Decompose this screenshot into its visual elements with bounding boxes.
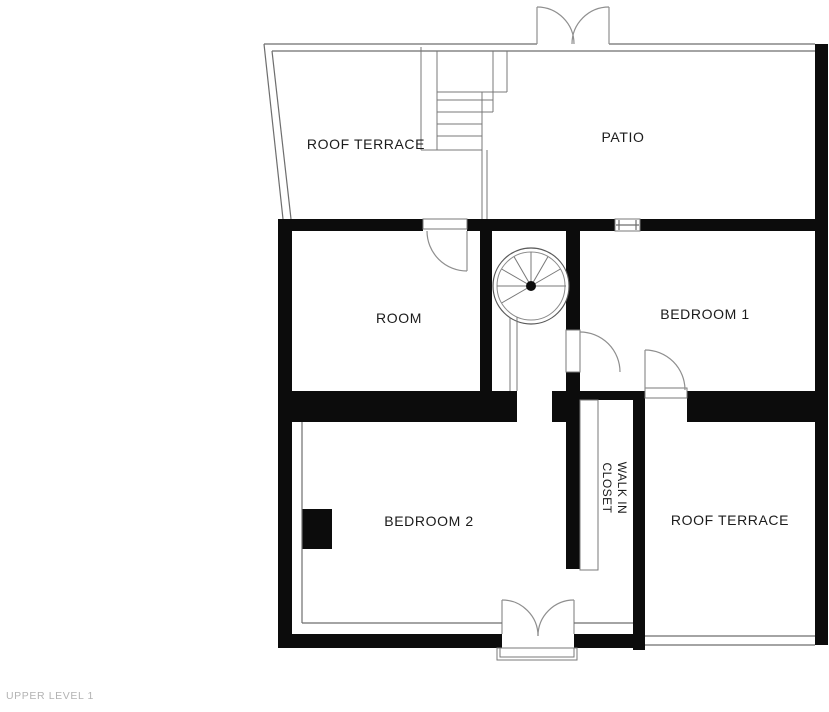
wall-stairhall-left bbox=[480, 231, 492, 391]
walls bbox=[278, 44, 828, 650]
label-roof-terrace-top: ROOF TERRACE bbox=[307, 136, 425, 152]
floor-plan-canvas: ROOF TERRACE PATIO ROOM BEDROOM 1 BEDROO… bbox=[0, 0, 829, 712]
label-roof-terrace-bottom: ROOF TERRACE bbox=[671, 512, 789, 528]
wall-left bbox=[278, 219, 292, 648]
window bbox=[615, 219, 640, 231]
wall-bedroom1-bottom bbox=[687, 391, 828, 422]
spiral-staircase bbox=[493, 248, 569, 391]
floor-plan-drawing bbox=[0, 0, 829, 712]
wall-top-c bbox=[640, 219, 816, 231]
door-patio-double bbox=[537, 7, 609, 44]
wall-bedroom2-top bbox=[278, 391, 517, 422]
wall-top-b bbox=[467, 219, 615, 231]
door-bedroom2-double bbox=[497, 600, 577, 660]
door-bedroom1-south bbox=[645, 350, 687, 398]
wall-closet-left bbox=[566, 372, 580, 569]
door-room bbox=[423, 219, 467, 271]
label-walk-in-closet-line2: CLOSET bbox=[599, 462, 614, 514]
label-bedroom-2: BEDROOM 2 bbox=[384, 513, 473, 529]
door-bedroom1-west bbox=[566, 330, 620, 372]
wall-top-a bbox=[278, 219, 423, 231]
label-bedroom-1: BEDROOM 1 bbox=[660, 306, 749, 322]
door-step-inner bbox=[500, 648, 574, 657]
wall-closet-right bbox=[633, 391, 645, 650]
wardrobe bbox=[580, 400, 598, 570]
wall-closet-stub bbox=[552, 391, 568, 422]
chimney-block bbox=[302, 509, 332, 549]
wall-right bbox=[815, 44, 828, 645]
label-patio: PATIO bbox=[602, 129, 645, 145]
spiral-center-post bbox=[526, 281, 536, 291]
label-room: ROOM bbox=[376, 310, 422, 326]
label-walk-in-closet: WALK IN CLOSET bbox=[599, 462, 629, 514]
level-label: UPPER LEVEL 1 bbox=[6, 690, 94, 702]
wall-bottom-left bbox=[278, 634, 502, 648]
staircase bbox=[421, 47, 507, 219]
exterior-boundary-lines bbox=[264, 44, 815, 645]
label-walk-in-closet-line1: WALK IN bbox=[614, 462, 629, 514]
